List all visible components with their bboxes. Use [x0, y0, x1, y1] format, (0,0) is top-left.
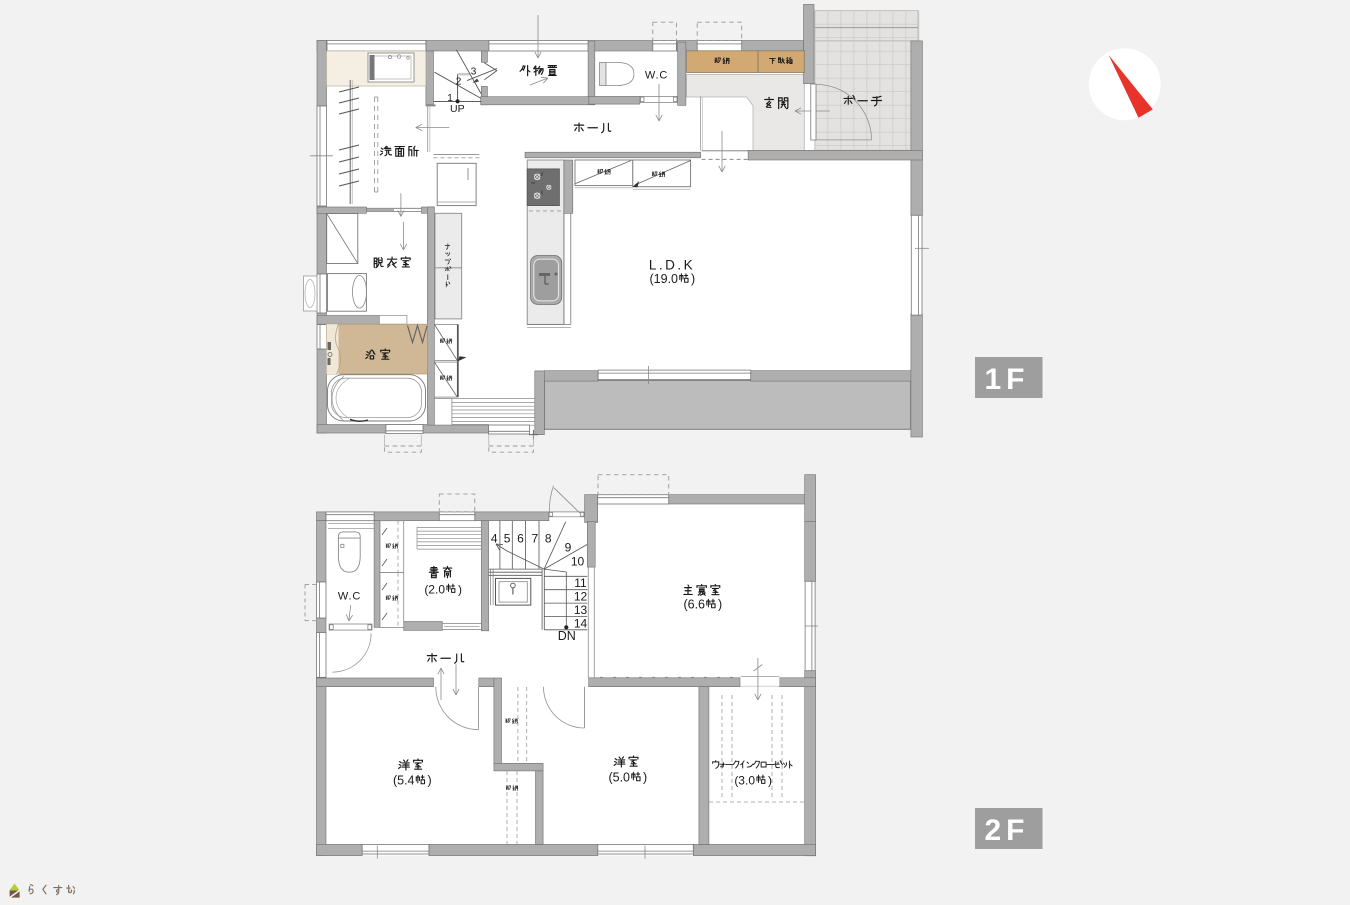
- svg-text:UP: UP: [450, 103, 465, 115]
- svg-text:7: 7: [532, 532, 539, 546]
- svg-text:(19.0: (19.0: [650, 272, 679, 286]
- svg-text:1F: 1F: [984, 363, 1029, 396]
- svg-text:): ): [458, 583, 462, 597]
- svg-text:): ): [691, 272, 695, 286]
- svg-text:10: 10: [571, 555, 585, 569]
- svg-text:5: 5: [504, 532, 511, 546]
- svg-text:(6.6: (6.6: [683, 598, 705, 612]
- svg-text:2: 2: [456, 77, 462, 88]
- svg-text:(3.0: (3.0: [734, 774, 755, 788]
- svg-text:13: 13: [574, 603, 588, 617]
- svg-text:12: 12: [574, 590, 588, 604]
- svg-text:DN: DN: [558, 629, 576, 643]
- svg-text:): ): [643, 771, 647, 785]
- svg-text:4: 4: [491, 532, 498, 546]
- svg-text:8: 8: [545, 532, 552, 546]
- svg-text:): ): [768, 774, 772, 788]
- svg-text:9: 9: [565, 541, 572, 555]
- svg-text:): ): [428, 774, 432, 788]
- svg-text:6: 6: [517, 532, 524, 546]
- svg-text:): ): [718, 598, 722, 612]
- svg-text:(5.4: (5.4: [393, 774, 415, 788]
- svg-text:14: 14: [574, 616, 588, 630]
- svg-text:L.D.K: L.D.K: [649, 258, 695, 273]
- svg-text:W.C: W.C: [338, 591, 361, 603]
- svg-text:11: 11: [574, 576, 587, 590]
- svg-text:W.C: W.C: [645, 70, 668, 82]
- svg-text:2F: 2F: [984, 814, 1029, 847]
- svg-text:(5.0: (5.0: [608, 771, 630, 785]
- svg-text:(2.0: (2.0: [424, 583, 445, 597]
- svg-text:3: 3: [471, 66, 477, 77]
